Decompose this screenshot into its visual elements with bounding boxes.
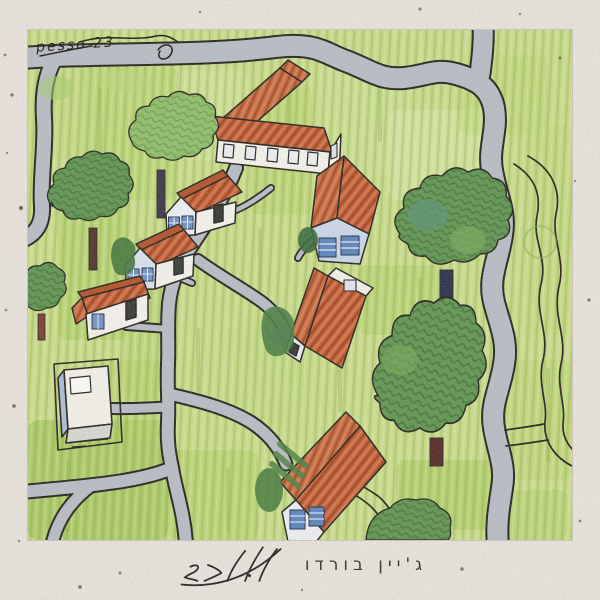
bush	[111, 237, 135, 275]
signature-text: pesso 23	[36, 34, 116, 55]
bush	[38, 76, 74, 100]
bush	[261, 306, 294, 356]
artist-signature: pesso 23	[32, 30, 222, 66]
caption: ג'יין בורדו	[0, 541, 600, 589]
handwritten-title	[173, 542, 289, 588]
village-map-drawing	[28, 30, 572, 540]
bush	[298, 227, 318, 253]
bush	[102, 68, 146, 92]
band-name: ג'יין בורדו	[305, 555, 427, 575]
bush	[255, 468, 283, 512]
village-illustration: pesso 23	[28, 30, 572, 540]
polaroid-frame: pesso 23 ג'יין בורדו	[0, 0, 600, 600]
